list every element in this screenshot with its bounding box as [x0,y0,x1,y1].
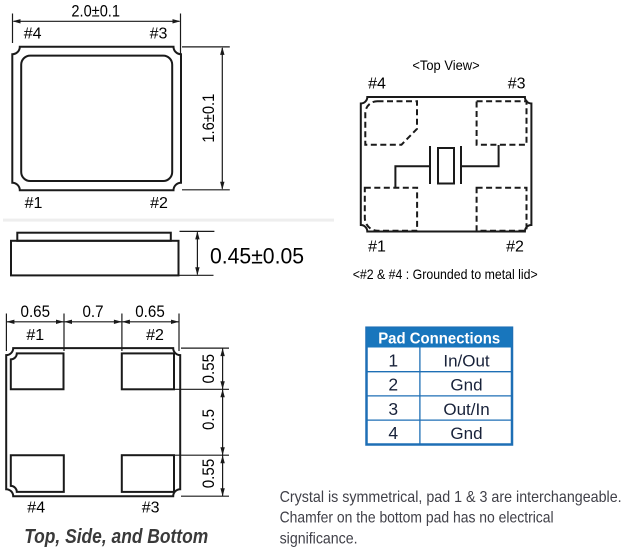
svg-text:4: 4 [388,423,398,443]
svg-text:Out/In: Out/In [443,400,489,419]
svg-text:#1: #1 [26,327,44,344]
svg-text:#4: #4 [368,76,386,93]
svg-text:<#2 & #4 : Grounded to metal l: <#2 & #4 : Grounded to metal lid> [353,266,538,282]
svg-text:3: 3 [388,399,398,419]
svg-text:Pad Connections: Pad Connections [378,331,500,348]
svg-text:#2: #2 [150,195,168,212]
svg-text:#4: #4 [24,26,42,43]
svg-text:Top, Side, and Bottom: Top, Side, and Bottom [24,525,208,548]
svg-text:#1: #1 [368,239,386,256]
svg-text:0.45±0.05: 0.45±0.05 [210,244,304,269]
svg-text:Gnd: Gnd [450,424,482,443]
svg-text:<Top View>: <Top View> [412,58,479,73]
svg-text:0.7: 0.7 [83,302,104,321]
svg-text:0.65: 0.65 [21,302,51,321]
svg-text:2.0±0.1: 2.0±0.1 [71,2,120,21]
svg-text:0.5: 0.5 [199,409,218,430]
svg-text:1: 1 [388,351,398,371]
svg-text:Crystal is symmetrical, pad 1: Crystal is symmetrical, pad 1 & 3 are in… [280,489,622,506]
svg-text:#4: #4 [27,500,45,517]
svg-text:0.65: 0.65 [135,302,165,321]
svg-text:0.55: 0.55 [199,459,218,489]
svg-text:#2: #2 [506,239,524,256]
svg-text:#2: #2 [146,327,164,344]
svg-text:#3: #3 [150,26,168,43]
svg-text:Gnd: Gnd [450,376,482,395]
svg-text:1.6±0.1: 1.6±0.1 [199,94,218,143]
svg-text:In/Out: In/Out [443,352,490,371]
svg-text:#3: #3 [142,500,160,517]
svg-text:0.55: 0.55 [199,354,218,384]
svg-text:2: 2 [388,375,398,395]
svg-text:significance.: significance. [280,531,358,548]
svg-text:Chamfer on the bottom pad has: Chamfer on the bottom pad has no electri… [280,510,554,527]
svg-text:#1: #1 [25,195,43,212]
svg-text:#3: #3 [508,76,526,93]
